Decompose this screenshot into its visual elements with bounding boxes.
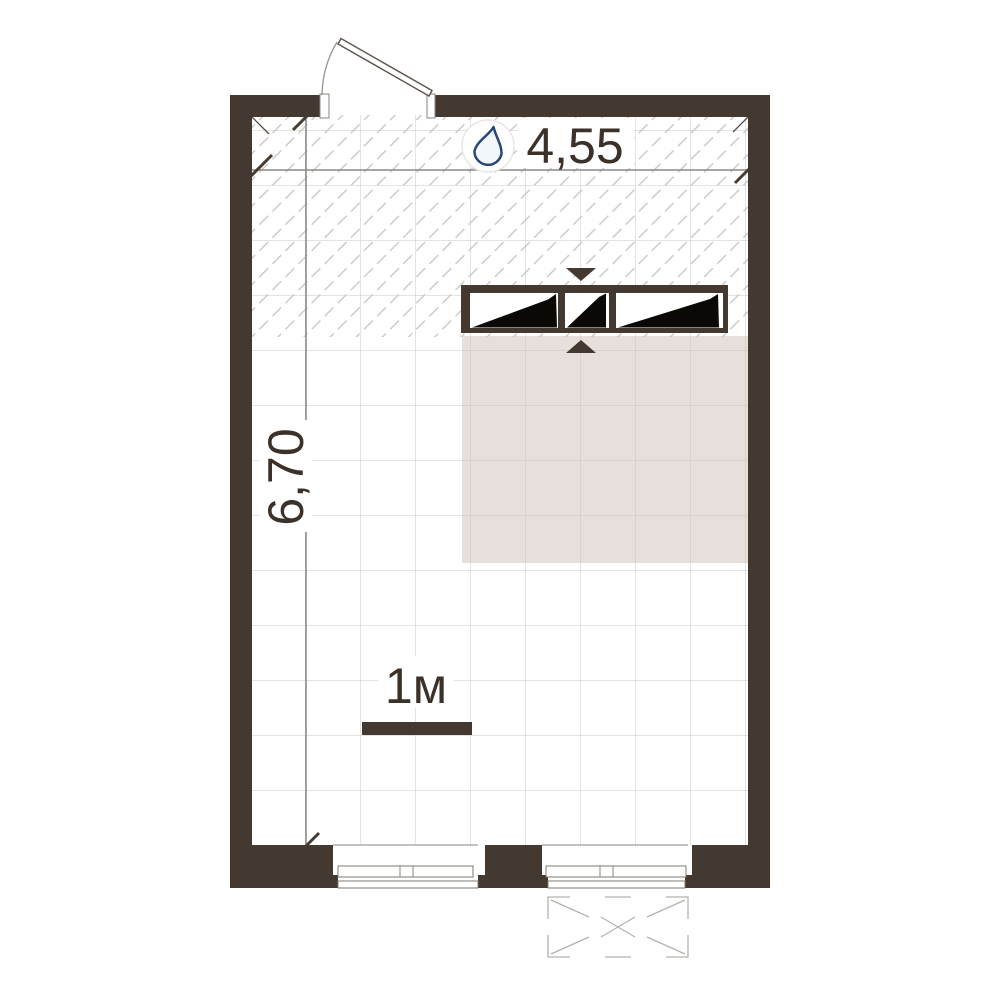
- scale-label: 1м: [385, 658, 447, 714]
- wardrobe: [461, 285, 728, 333]
- dim-width-label: 4,55: [526, 118, 623, 174]
- scale-bar: [362, 722, 472, 735]
- floor-plan-svg: 4,55 6,70 1м: [0, 0, 1000, 1000]
- window-right: [542, 845, 688, 888]
- entrance-door: [320, 39, 435, 119]
- door-swing-arc: [322, 42, 337, 95]
- door-leaf: [338, 39, 432, 97]
- dim-height-label: 6,70: [258, 428, 314, 525]
- window-left: [333, 845, 478, 888]
- floor-plan-page: 4,55 6,70 1м: [0, 0, 1000, 1000]
- door-jamb: [427, 94, 435, 118]
- balcony-outline: [548, 897, 688, 957]
- door-jamb: [320, 94, 329, 118]
